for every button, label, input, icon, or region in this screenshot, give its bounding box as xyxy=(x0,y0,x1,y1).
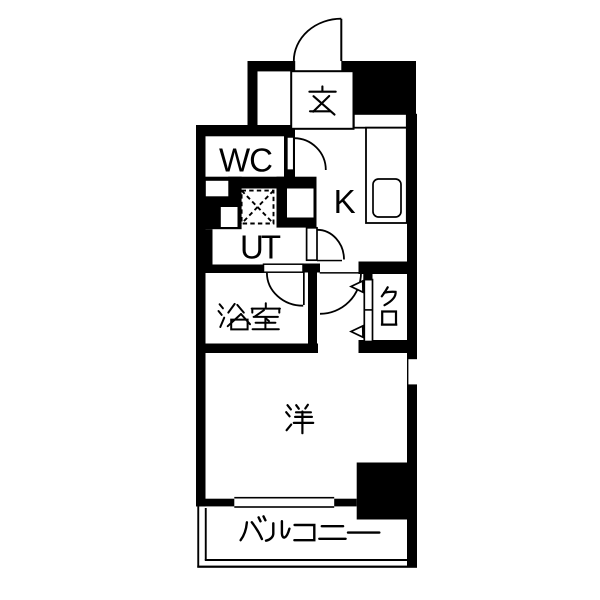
svg-text:WC: WC xyxy=(219,141,273,178)
svg-text:UT: UT xyxy=(240,229,281,266)
svg-text:K: K xyxy=(334,183,356,220)
